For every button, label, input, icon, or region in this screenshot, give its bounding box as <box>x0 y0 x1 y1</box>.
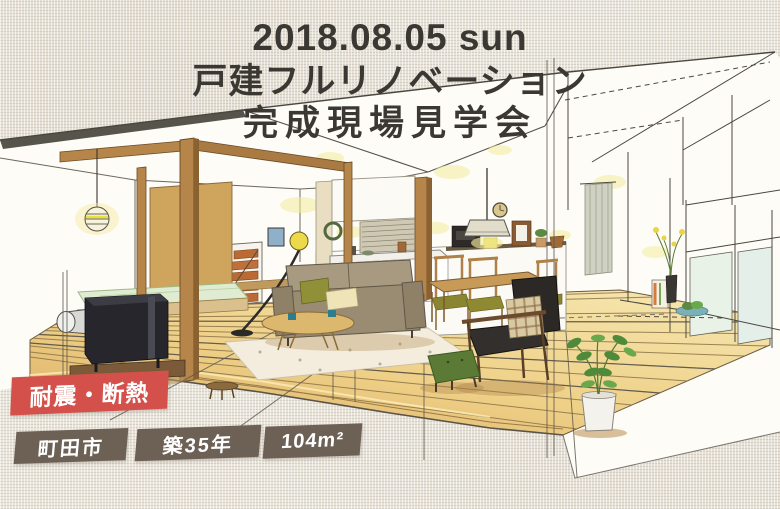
mug <box>288 313 296 320</box>
cream-cushion <box>326 288 358 310</box>
building-age-badge: 築35年 <box>135 425 262 461</box>
side-stool <box>206 382 238 400</box>
wall-clock <box>493 203 507 217</box>
wall-picture <box>268 228 284 246</box>
shelf-plant <box>535 229 547 237</box>
floor-area-badge: 104m² <box>263 423 363 459</box>
flyer-banner: 2018.08.05 sun 戸建フルリノベーション 完成現場見学会 耐震・断熱… <box>0 0 780 509</box>
sofa <box>265 260 435 351</box>
location-badge: 町田市 <box>14 428 129 464</box>
mug <box>328 310 336 317</box>
green-cushion <box>300 278 330 304</box>
curtain <box>580 182 616 275</box>
basket <box>550 236 564 248</box>
feature-badge: 耐震・断熱 <box>10 371 169 416</box>
